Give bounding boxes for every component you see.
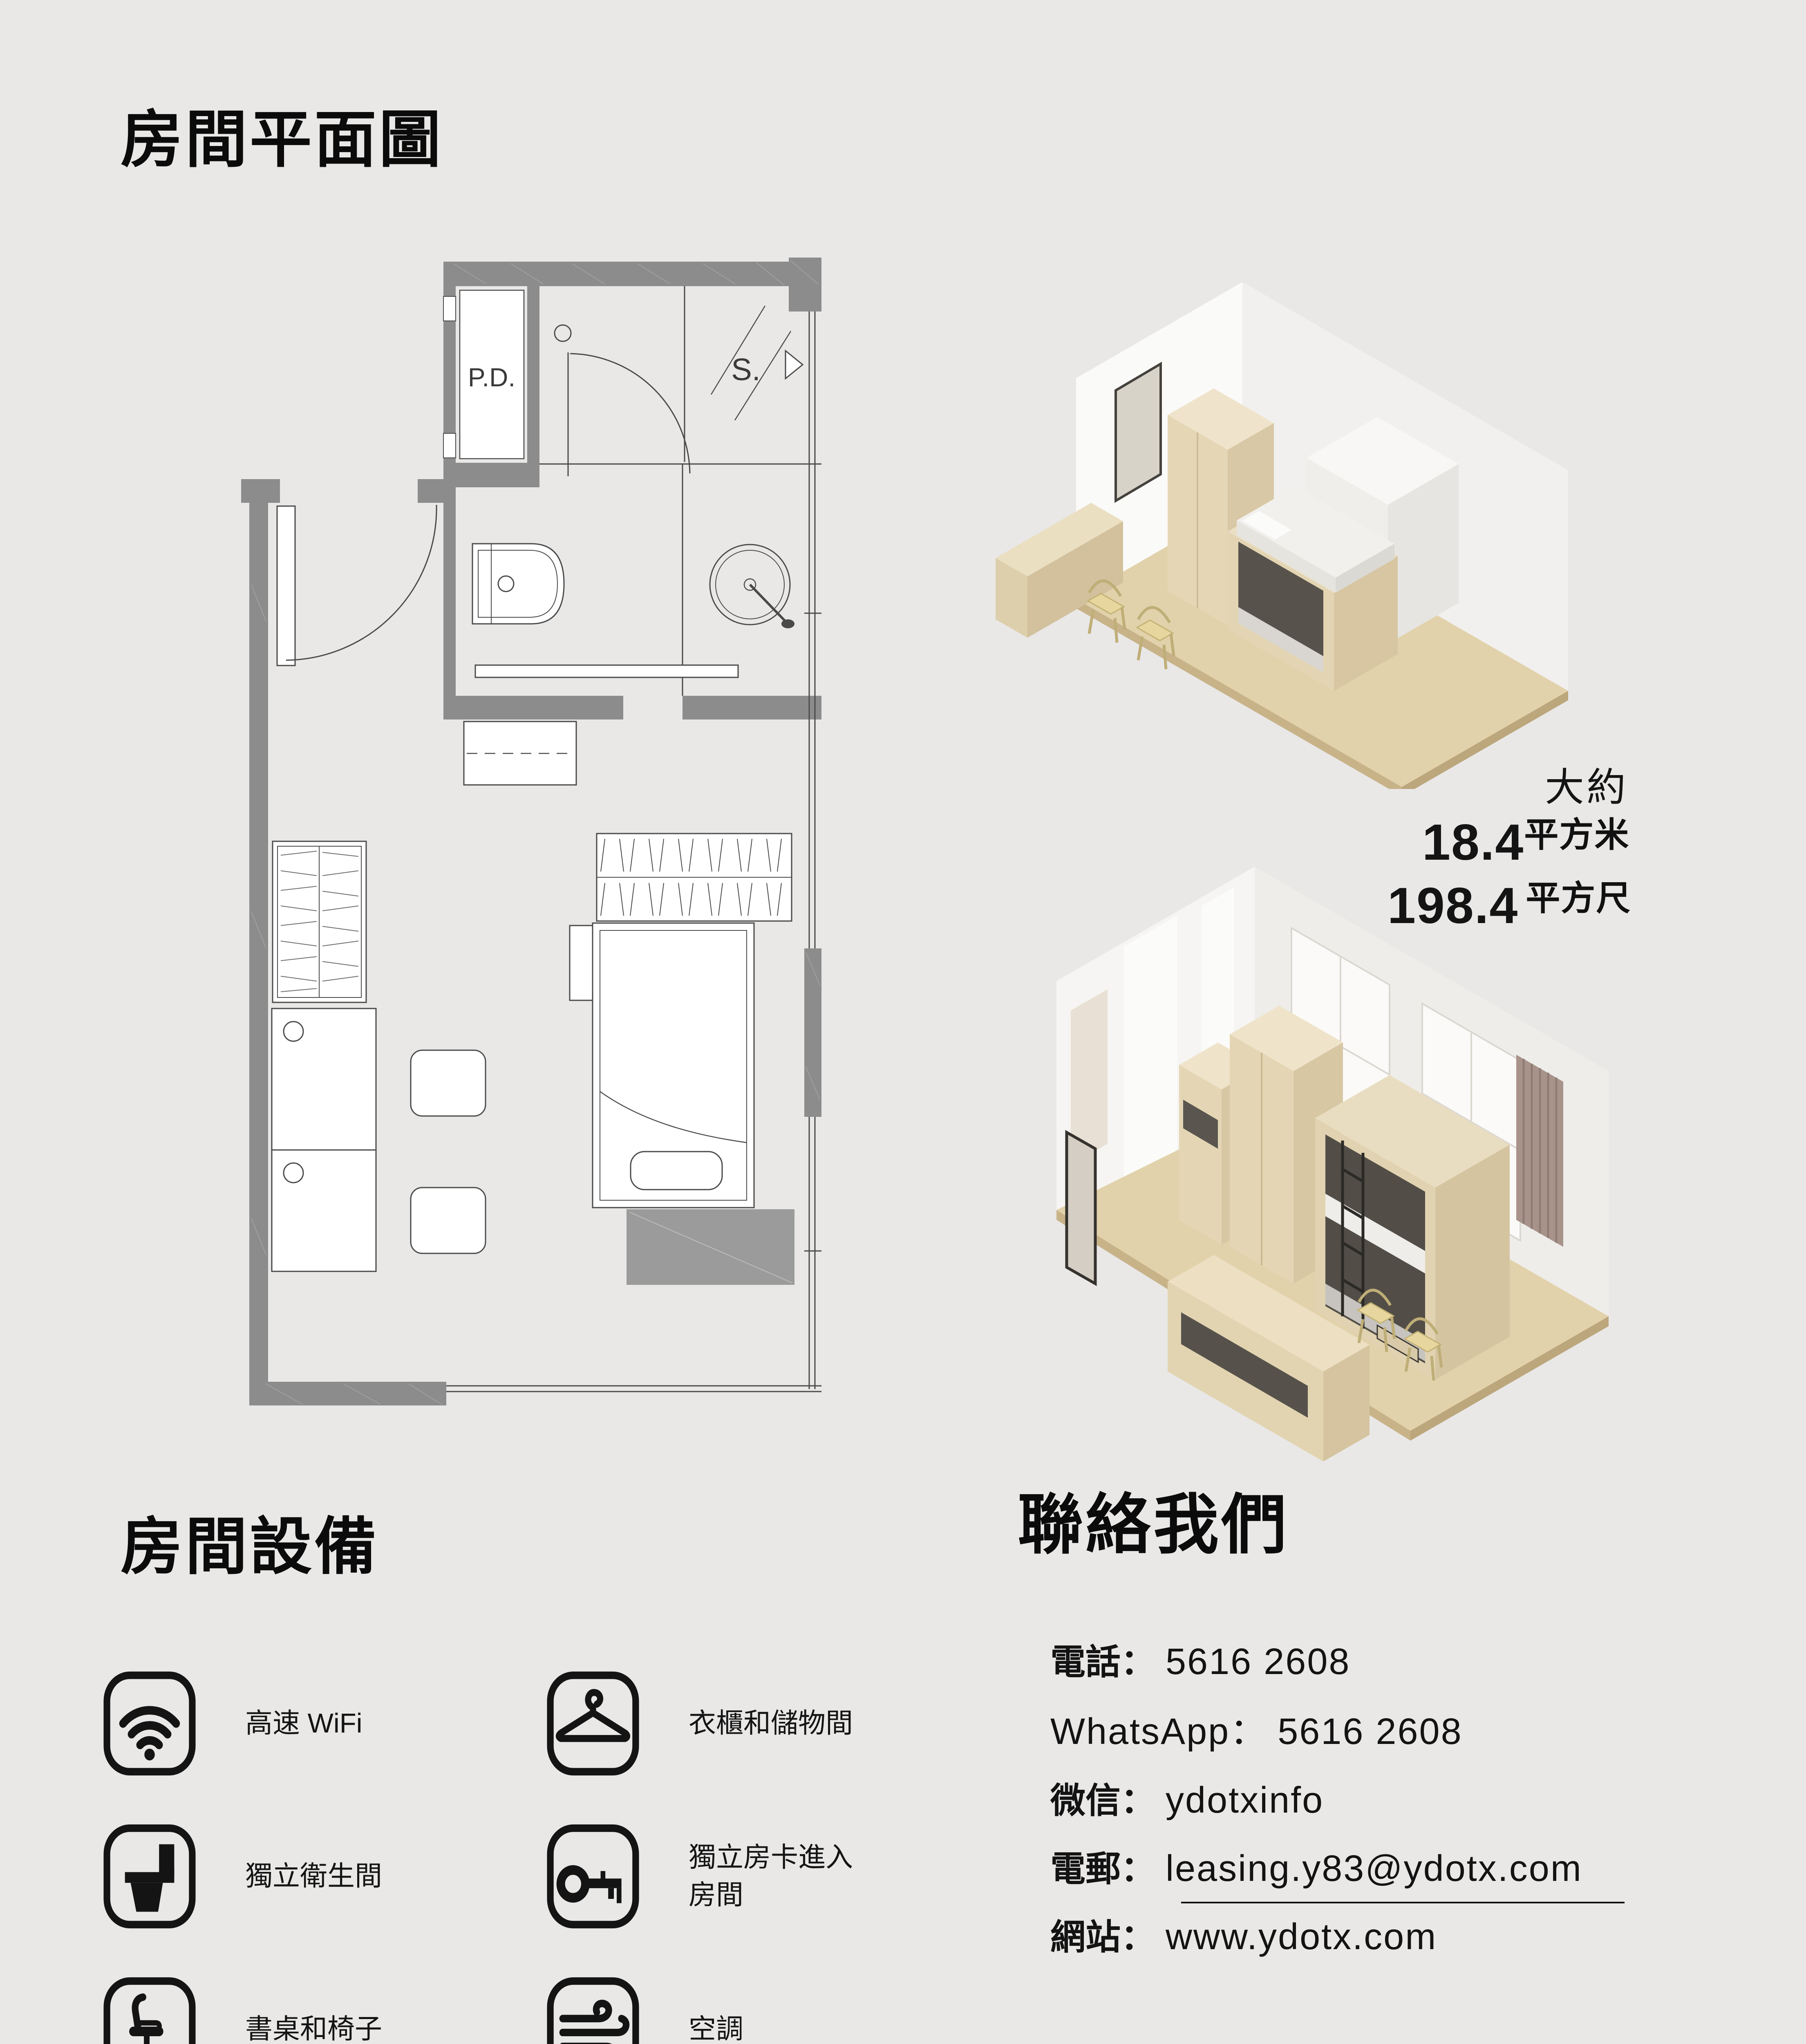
desk-chair-icon [102, 1976, 197, 2044]
plan-label-shower: S. [731, 352, 761, 387]
facility-label: 衣櫃和儲物間 [689, 1705, 877, 1742]
plan-stool [411, 1050, 486, 1116]
facility-key-access: 獨立房卡進入房間 [546, 1823, 877, 1930]
plan-headboard [597, 834, 792, 921]
toilet-icon [102, 1823, 197, 1930]
hanger-icon [546, 1670, 640, 1777]
isometric-room-render-top [932, 241, 1610, 789]
contact-divider [1181, 1902, 1625, 1903]
facility-wifi: 高速 WiFi [102, 1670, 433, 1777]
facility-desk-chair: 書桌和椅子 [102, 1976, 433, 2044]
facility-label: 空調 [689, 2010, 877, 2044]
contact-row-whatsapp: WhatsApp：5616 2608 [1050, 1701, 1582, 1755]
facility-wardrobe: 衣櫃和儲物間 [546, 1670, 877, 1777]
facility-label: 高速 WiFi [245, 1705, 433, 1742]
key-icon [546, 1823, 640, 1930]
render2-curtain [1516, 1055, 1563, 1247]
plan-bed [593, 923, 754, 1208]
isometric-room-render-bottom [932, 814, 1667, 1464]
contact-row-email: 電郵：leasing.y83@ydotx.com [1050, 1840, 1582, 1891]
plan-stool [411, 1188, 486, 1253]
facilities-column-1: 高速 WiFi 獨立衛生間 [102, 1670, 433, 2044]
contact-row-website: 網站：www.ydotx.com [1050, 1908, 1582, 1959]
facilities-title: 房間設備 [121, 1496, 379, 1586]
facility-label: 書桌和椅子 [245, 2010, 433, 2044]
contact-row-wechat: 微信：ydotxinfo [1050, 1772, 1582, 1823]
plan-label-pd: P.D. [468, 363, 515, 392]
facility-label: 獨立房卡進入房間 [689, 1839, 877, 1914]
wind-icon [546, 1976, 640, 2044]
plan-cabinets [272, 1009, 376, 1271]
contact-row-phone: 電話：5616 2608 [1050, 1633, 1582, 1684]
wifi-icon [102, 1670, 197, 1777]
facility-toilet: 獨立衛生間 [102, 1823, 433, 1930]
facility-air-conditioning: 空調 [546, 1976, 877, 2044]
area-approx-label: 大約 [1545, 755, 1628, 812]
contact-title: 聯絡我們 [1018, 1472, 1289, 1567]
floor-plan-drawing: P.D. S. [241, 258, 821, 1406]
plan-fixtures [272, 544, 794, 1271]
render2-mirror [1067, 1132, 1095, 1284]
plan-shelf [570, 926, 593, 1000]
plan-platform [627, 1209, 794, 1285]
contact-list: 電話：5616 2608 WhatsApp：5616 2608 微信：ydotx… [1050, 1633, 1582, 1977]
page-title: 房間平面圖 [121, 89, 443, 179]
plan-wardrobe [273, 841, 366, 1002]
flyer-page: 房間平面圖 [0, 0, 1806, 2044]
facilities-column-2: 衣櫃和儲物間 獨立房卡進入房間 [546, 1670, 877, 2044]
facility-label: 獨立衛生間 [245, 1858, 433, 1895]
